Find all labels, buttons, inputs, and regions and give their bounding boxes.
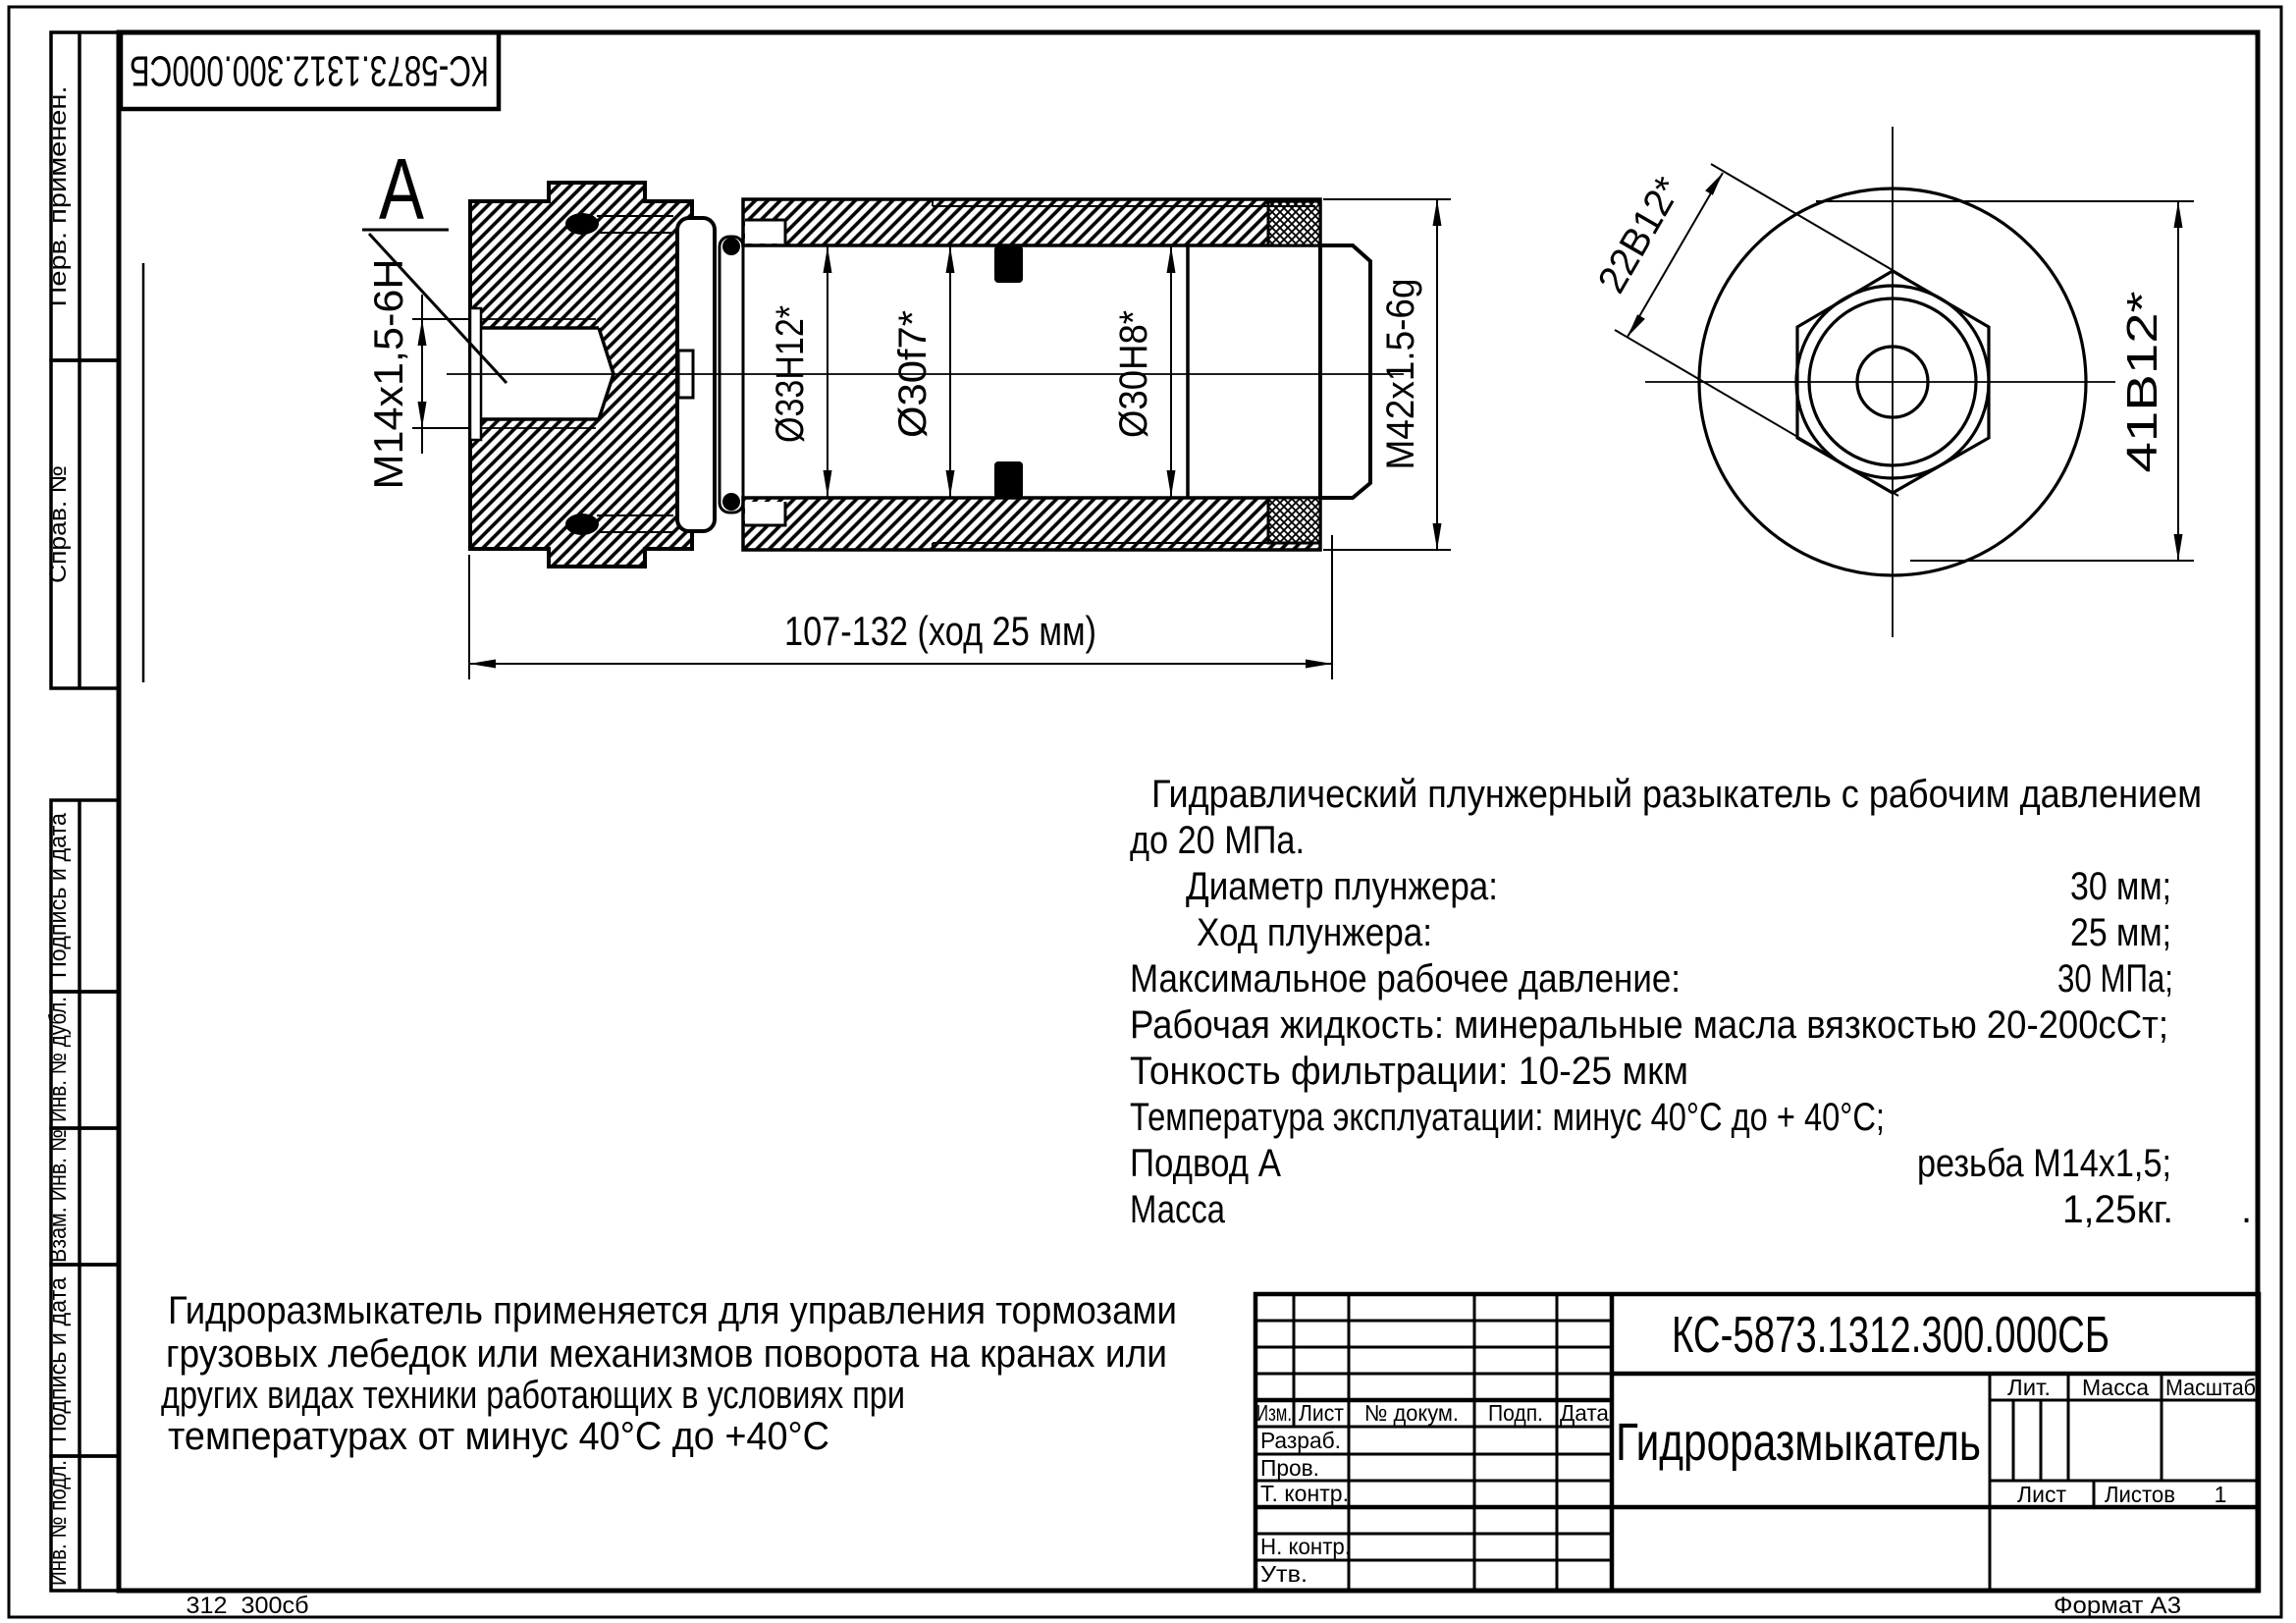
svg-text:№ докум.: № докум. [1364,1400,1459,1426]
svg-text:Взам. Инв. №: Взам. Инв. № [45,1129,72,1263]
svg-text:Масса: Масса [1130,1188,1226,1231]
svg-text:Разраб.: Разраб. [1260,1428,1341,1453]
svg-text:Подпись и дата: Подпись и дата [45,1276,72,1442]
svg-text:Н. контр.: Н. контр. [1260,1534,1351,1559]
svg-text:Утв.: Утв. [1260,1561,1308,1587]
svg-text:до 20 МПа.: до 20 МПа. [1130,819,1305,862]
svg-text:А: А [379,140,424,238]
svg-text:Подпись и дата: Подпись и дата [45,812,72,978]
svg-text:Максимальное рабочее давление:: Максимальное рабочее давление: [1130,957,1681,1001]
svg-text:Ход плунжера:: Ход плунжера: [1197,911,1432,954]
svg-text:41В12*: 41В12* [2118,292,2166,473]
svg-text:М14х1,5-6Н: М14х1,5-6Н [365,259,411,490]
svg-text:Инв. № подл.: Инв. № подл. [45,1460,72,1586]
svg-text:30 мм;: 30 мм; [2070,865,2171,908]
svg-text:Масса: Масса [2082,1375,2149,1400]
svg-text:Гидравлический плунжерный разы: Гидравлический плунжерный разыкатель с р… [1151,773,2202,816]
svg-text:1: 1 [2215,1482,2227,1507]
svg-text:22В12*: 22В12* [1590,170,1690,300]
svg-text:Подп.: Подп. [1488,1400,1543,1426]
svg-text:312_300сб: 312_300сб [187,1593,309,1619]
svg-text:Лист: Лист [2017,1482,2066,1507]
svg-text:Тонкость фильтрации: 10-25 мкм: Тонкость фильтрации: 10-25 мкм [1130,1050,1688,1093]
svg-text:107-132 (ход 25 мм): 107-132 (ход 25 мм) [784,608,1096,654]
svg-text:25 мм;: 25 мм; [2070,911,2171,954]
svg-text:Масштаб: Масштаб [2165,1375,2256,1400]
svg-text:Ø33Н12*: Ø33Н12* [769,305,812,443]
svg-text:Лист: Лист [1299,1400,1344,1426]
svg-text:КС-5873.1312.300.000СБ: КС-5873.1312.300.000СБ [1672,1307,2109,1364]
svg-text:других видах техники работающи: других видах техники работающих в услови… [161,1374,905,1417]
svg-text:КС-5873.1312.300.000СБ: КС-5873.1312.300.000СБ [130,47,489,95]
svg-text:резьба М14х1,5;: резьба М14х1,5; [1917,1142,2171,1185]
svg-text:температурах от минус 40°С до: температурах от минус 40°С до +40°С [168,1415,829,1458]
svg-text:Гидроразмыкатель применяется д: Гидроразмыкатель применяется для управле… [168,1289,1177,1332]
svg-text:Листов: Листов [2105,1482,2175,1507]
svg-text:Диаметр плунжера:: Диаметр плунжера: [1186,865,1498,908]
svg-text:Ø30Н8*: Ø30Н8* [1112,310,1155,438]
svg-text:Инв. № дубл.: Инв. № дубл. [45,997,72,1122]
svg-text:М42х1.5-6g: М42х1.5-6g [1379,279,1422,470]
svg-text:Подвод А: Подвод А [1130,1142,1281,1185]
svg-text:Температура эксплуатации: мину: Температура эксплуатации: минус 40°С до … [1130,1096,1885,1139]
svg-text:Т. контр.: Т. контр. [1260,1481,1349,1506]
svg-text:1,25кг.: 1,25кг. [2062,1188,2173,1231]
svg-text:Справ. №: Справ. № [45,465,72,583]
svg-text:Гидроразмыкатель: Гидроразмыкатель [1616,1413,1981,1472]
svg-text:Перв. применен.: Перв. применен. [45,86,72,307]
svg-text:Лит.: Лит. [2007,1375,2051,1400]
svg-text:Ø30f7*: Ø30f7* [891,310,934,438]
svg-text:Формат А3: Формат А3 [2054,1593,2181,1619]
svg-text:Рабочая жидкость: минеральные: Рабочая жидкость: минеральные масла вязк… [1130,1003,2168,1047]
svg-text:Пров.: Пров. [1260,1455,1319,1481]
svg-text:Изм.: Изм. [1256,1400,1292,1426]
svg-text:грузовых лебедок или механизмо: грузовых лебедок или механизмов поворота… [166,1332,1167,1376]
svg-text:Дата: Дата [1560,1400,1609,1426]
svg-text:.: . [2241,1188,2252,1231]
svg-text:30 МПа;: 30 МПа; [2057,957,2173,1001]
